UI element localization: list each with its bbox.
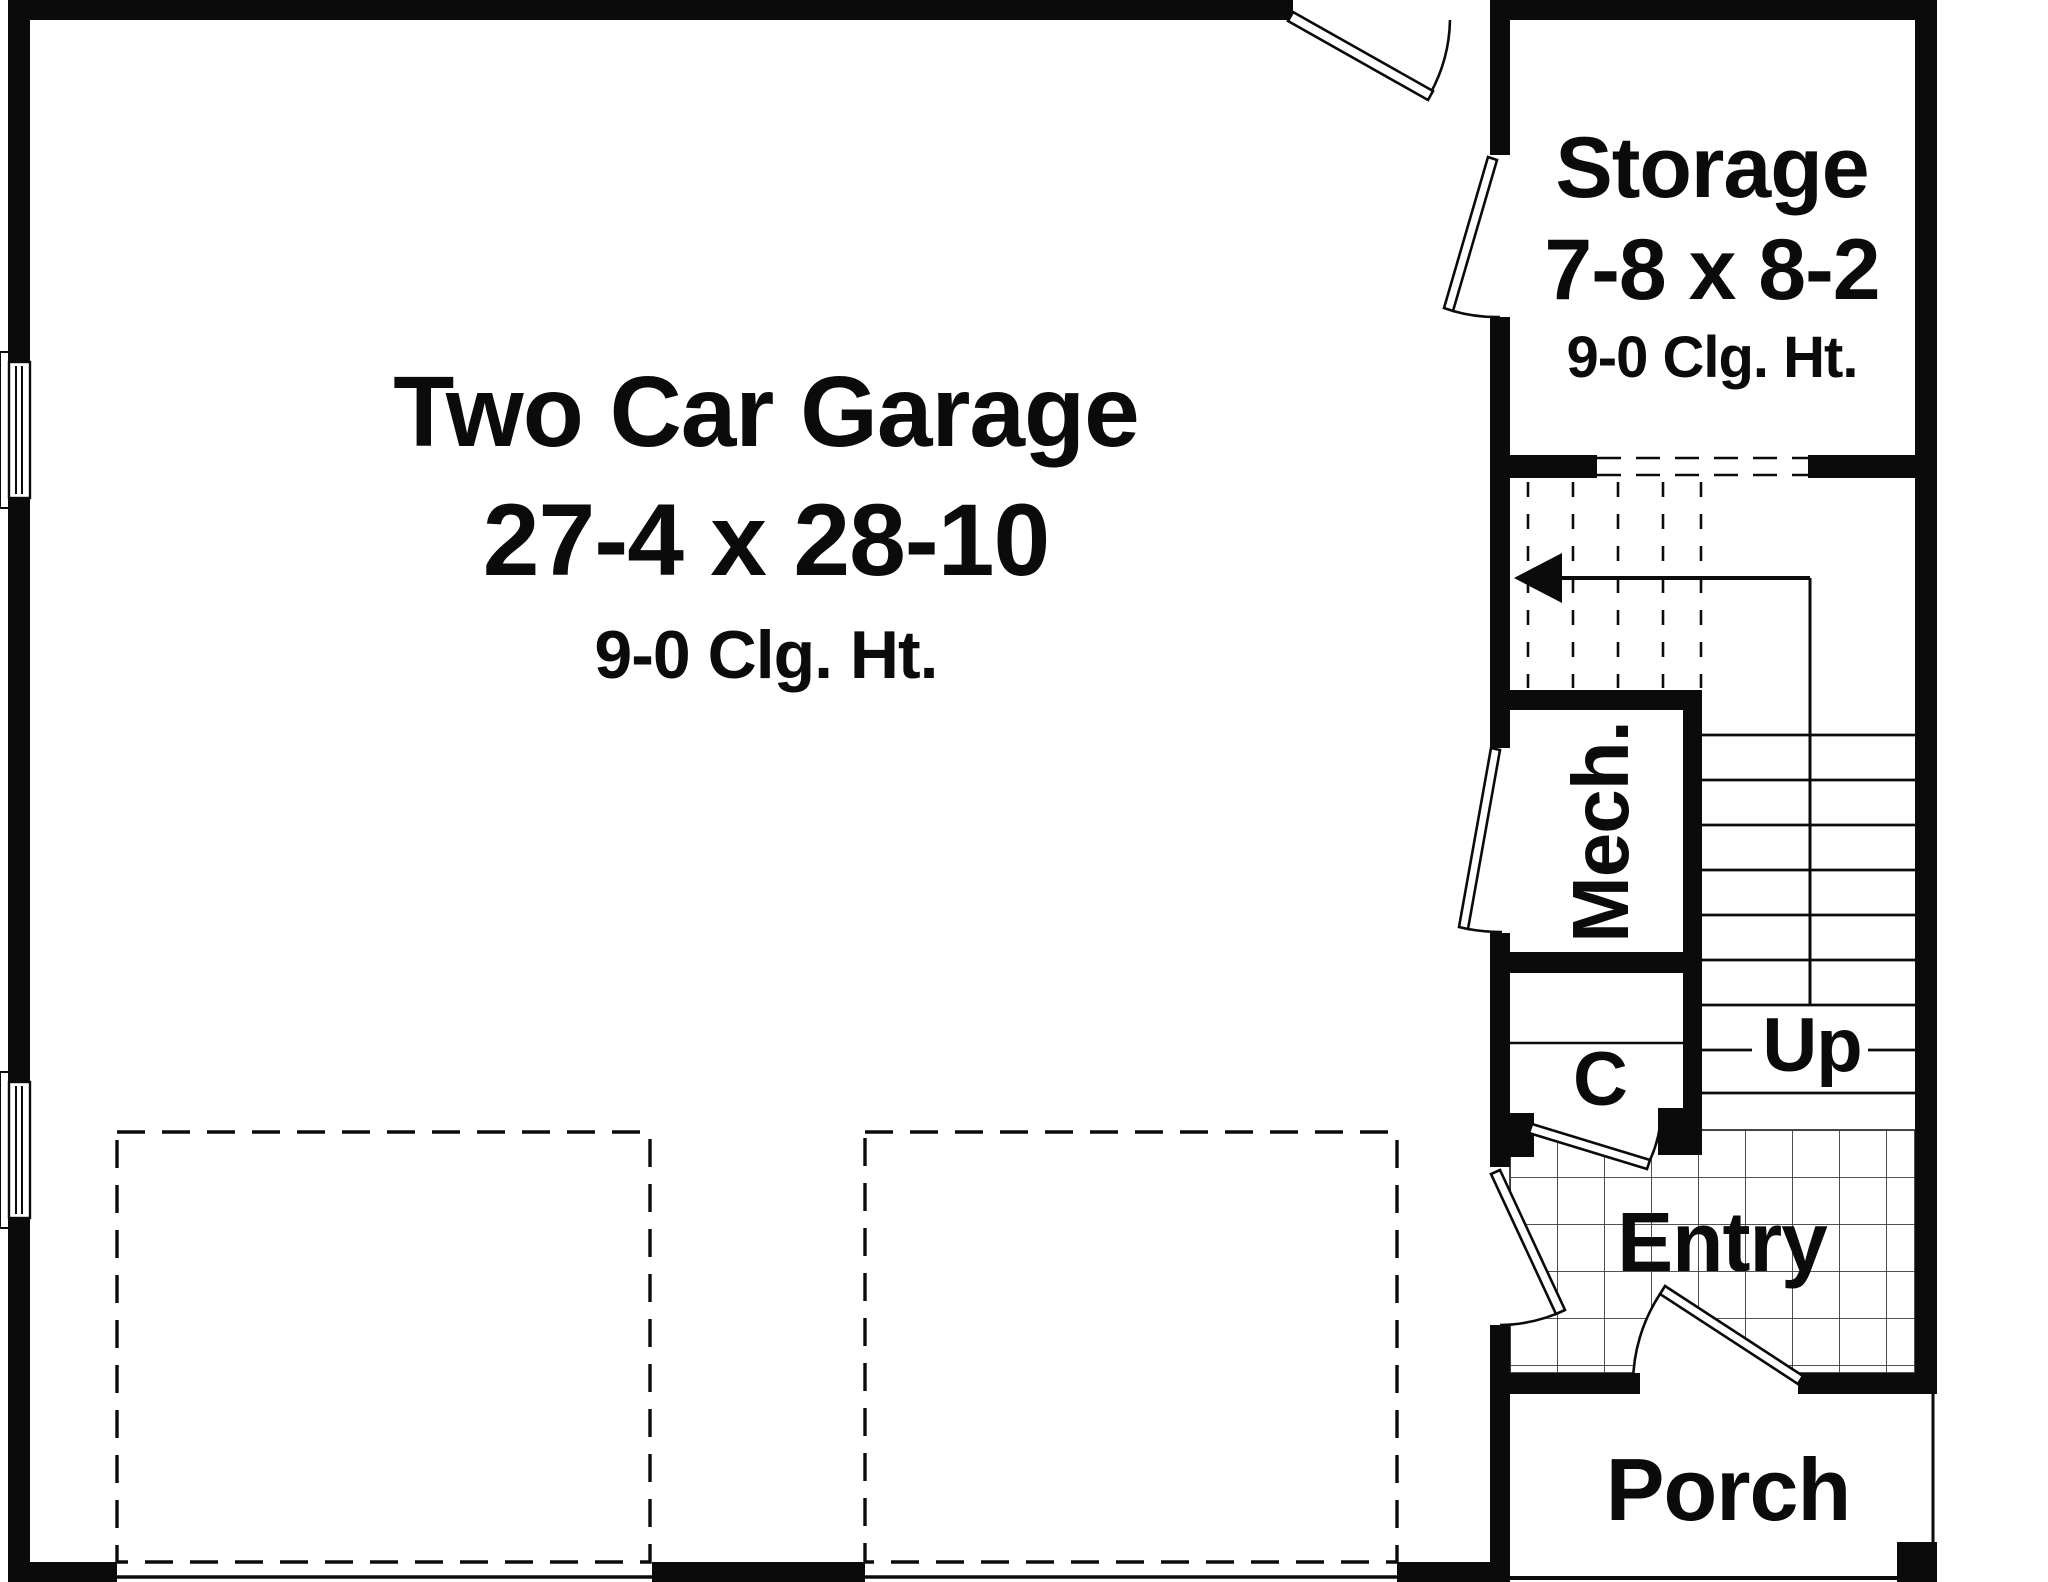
wall-mech-stair [1683, 690, 1702, 1137]
window-icon [0, 1072, 30, 1228]
porch-pier [1897, 1542, 1937, 1582]
garage-door-2-dashed-outline [865, 1132, 1397, 1562]
wall-left-upper [8, 0, 30, 362]
wall-bottom-pier [652, 1562, 865, 1582]
wall-mech-bottom [1490, 952, 1702, 973]
window-icon [0, 352, 30, 508]
wall-storage-stair-left [1490, 455, 1597, 478]
wall-left-middle [8, 498, 30, 1082]
garage-top-door-swing-icon [1288, 12, 1450, 100]
entry-label: Entry [1617, 1200, 1827, 1284]
garage-ceiling-label: 9-0 Clg. Ht. [594, 621, 937, 689]
mech-label: Mech. [1561, 721, 1641, 943]
wall-bottom-left [8, 1562, 117, 1582]
wall-divider-b [1490, 317, 1510, 748]
closet-label: C [1573, 1042, 1627, 1118]
porch-label: Porch [1606, 1446, 1850, 1534]
garage-name-label: Two Car Garage [393, 362, 1138, 462]
storage-dims-label: 7-8 x 8-2 [1544, 227, 1879, 313]
wall-right [1915, 0, 1937, 1393]
storage-name-label: Storage [1555, 125, 1868, 211]
garage-door-1-dashed-outline [117, 1132, 650, 1562]
closet-jamb-left [1510, 1113, 1534, 1157]
wall-top-garage [8, 0, 1293, 20]
garage-door-outlines [117, 1132, 1397, 1562]
mech-door-swing-icon [1459, 748, 1502, 932]
wall-storage-stair-right [1808, 455, 1937, 478]
up-label: Up [1762, 1008, 1861, 1084]
wall-divider-a [1490, 20, 1510, 155]
stair-headroom-dashed-wall [1597, 458, 1808, 475]
garage-dims-label: 27-4 x 28-10 [483, 489, 1049, 591]
wall-mech-top [1490, 690, 1702, 710]
wall-entry-porch-left [1490, 1373, 1640, 1394]
storage-ceiling-label: 9-0 Clg. Ht. [1567, 329, 1858, 387]
storage-door-swing-icon [1444, 157, 1500, 317]
floor-plan: Two Car Garage 27-4 x 28-10 9-0 Clg. Ht.… [0, 0, 2048, 1582]
wall-left-lower [8, 1218, 30, 1582]
closet-jamb-right [1658, 1108, 1702, 1155]
wall-entry-porch-right [1798, 1373, 1937, 1394]
wall-divider-d [1490, 1325, 1510, 1582]
wall-top-right-section [1490, 0, 1937, 20]
